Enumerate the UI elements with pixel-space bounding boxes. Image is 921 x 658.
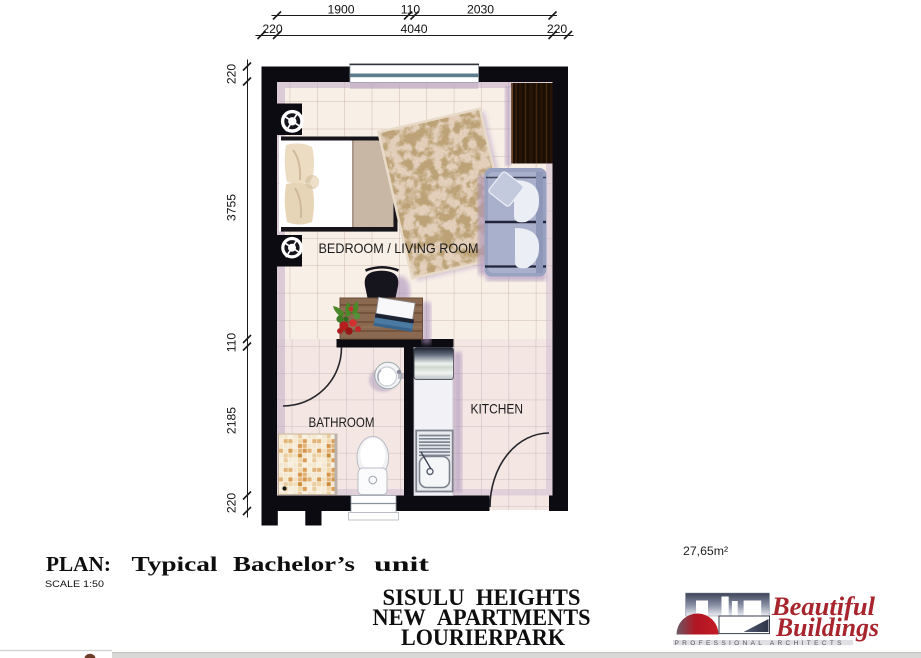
svg-text:Bachelor’s: Bachelor’s — [233, 552, 355, 576]
svg-text:BATHROOM: BATHROOM — [309, 414, 375, 430]
svg-text:220: 220 — [225, 64, 239, 85]
svg-text:220: 220 — [262, 22, 283, 36]
svg-text:27,65m²: 27,65m² — [683, 544, 728, 558]
svg-text:2185: 2185 — [225, 407, 239, 434]
svg-text:PLAN:: PLAN: — [46, 552, 111, 576]
svg-text:110: 110 — [401, 3, 421, 17]
svg-text:2030: 2030 — [467, 3, 494, 17]
svg-text:Typical: Typical — [132, 552, 218, 576]
svg-text:1900: 1900 — [327, 3, 354, 17]
svg-text:KITCHEN: KITCHEN — [471, 401, 524, 417]
svg-text:220: 220 — [225, 493, 239, 514]
svg-text:unit: unit — [374, 552, 429, 576]
svg-text:PROFESSIONAL ARCHITECTS: PROFESSIONAL ARCHITECTS — [675, 640, 845, 647]
svg-text:LOURIERPARK: LOURIERPARK — [401, 625, 565, 650]
svg-text:110: 110 — [225, 333, 239, 353]
svg-text:Buildings: Buildings — [775, 613, 879, 642]
svg-text:BEDROOM / LIVING ROOM: BEDROOM / LIVING ROOM — [319, 240, 479, 256]
svg-text:SCALE 1:50: SCALE 1:50 — [45, 579, 104, 590]
svg-text:4040: 4040 — [400, 22, 427, 36]
svg-text:220: 220 — [547, 22, 568, 36]
svg-text:3755: 3755 — [225, 194, 239, 221]
